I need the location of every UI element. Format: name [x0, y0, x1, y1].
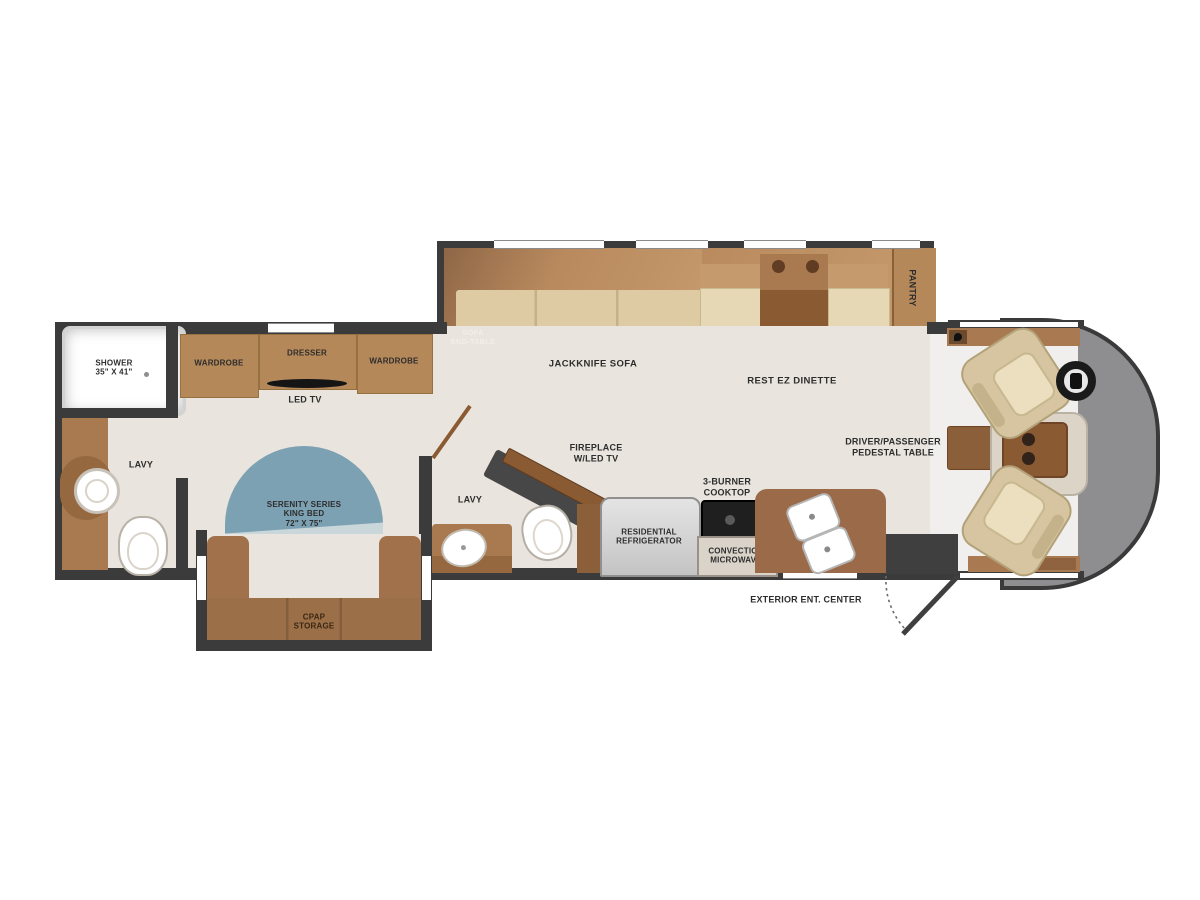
dinette-table-top: [760, 254, 828, 290]
window: [872, 241, 920, 248]
dash-top-console: [949, 330, 967, 344]
fireplace-label: FIREPLACE W/LED TV: [570, 442, 623, 463]
dresser-label: DRESSER: [287, 348, 327, 357]
refrigerator-label: RESIDENTIAL REFRIGERATOR: [616, 528, 682, 547]
steering-wheel: [1056, 361, 1096, 401]
cabinet-beside-fridge: [577, 504, 601, 573]
bed-slideout-wall-bottom: [196, 640, 432, 651]
jackknife-sofa-label: JACKKNIFE SOFA: [549, 358, 637, 369]
dash-knob: [954, 333, 962, 341]
wall-right-of-shower: [166, 322, 178, 418]
bed-label: SERENITY SERIES KING BED 72" X 75": [267, 500, 341, 528]
dinette-cupholder: [772, 260, 785, 273]
mid-toilet-seat: [529, 516, 566, 557]
wardrobe-right-label: WARDROBE: [369, 356, 418, 365]
cooktop: [701, 500, 759, 540]
window: [636, 241, 708, 248]
rear-lavy-label: LAVY: [129, 460, 153, 471]
cupholder: [1022, 452, 1035, 465]
shower-drain: [144, 372, 149, 377]
dinette-label: REST EZ DINETTE: [747, 375, 836, 386]
pantry-label: PANTRY: [907, 269, 918, 306]
cab-side-table: [947, 426, 993, 470]
wall-below-shower: [55, 408, 178, 418]
steering-hub: [1070, 373, 1082, 389]
window: [744, 241, 806, 248]
mid-sink-drain: [460, 545, 466, 551]
rear-toilet-seat: [127, 532, 159, 570]
cpap-label: CPAP STORAGE: [294, 613, 335, 632]
pedestal-table-label: DRIVER/PASSENGER PEDESTAL TABLE: [845, 436, 941, 457]
exterior-ent-label: EXTERIOR ENT. CENTER: [750, 595, 862, 606]
bed-slideout-window-left: [197, 556, 206, 600]
cooktop-knob: [725, 515, 735, 525]
rv-floorplan: SHOWER 35" X 41" LAVY WARDROBE DRESSER W…: [0, 0, 1200, 900]
mid-lavy-label: LAVY: [458, 495, 482, 506]
window-bedroom: [268, 324, 334, 332]
entry-door: [886, 534, 958, 574]
shower-label: SHOWER 35" X 41": [95, 359, 132, 378]
rear-sink: [74, 468, 120, 514]
living-slideout: [437, 241, 934, 336]
cooktop-label: 3-BURNER COOKTOP: [703, 476, 751, 497]
window: [494, 241, 604, 248]
sink-drain: [823, 545, 831, 553]
sofa-end-table-label: SOFA END-TABLE: [451, 329, 496, 347]
sink-drain: [808, 513, 816, 521]
bedroom-tv: [267, 379, 347, 388]
dinette-cupholder: [806, 260, 819, 273]
rear-sink-ring: [85, 479, 109, 503]
bed-slideout-window-right: [422, 556, 431, 600]
led-tv-label: LED TV: [288, 395, 321, 406]
wardrobe-left-label: WARDROBE: [194, 358, 243, 367]
rear-toilet: [118, 516, 168, 576]
wall-bath-bedroom: [176, 478, 188, 570]
